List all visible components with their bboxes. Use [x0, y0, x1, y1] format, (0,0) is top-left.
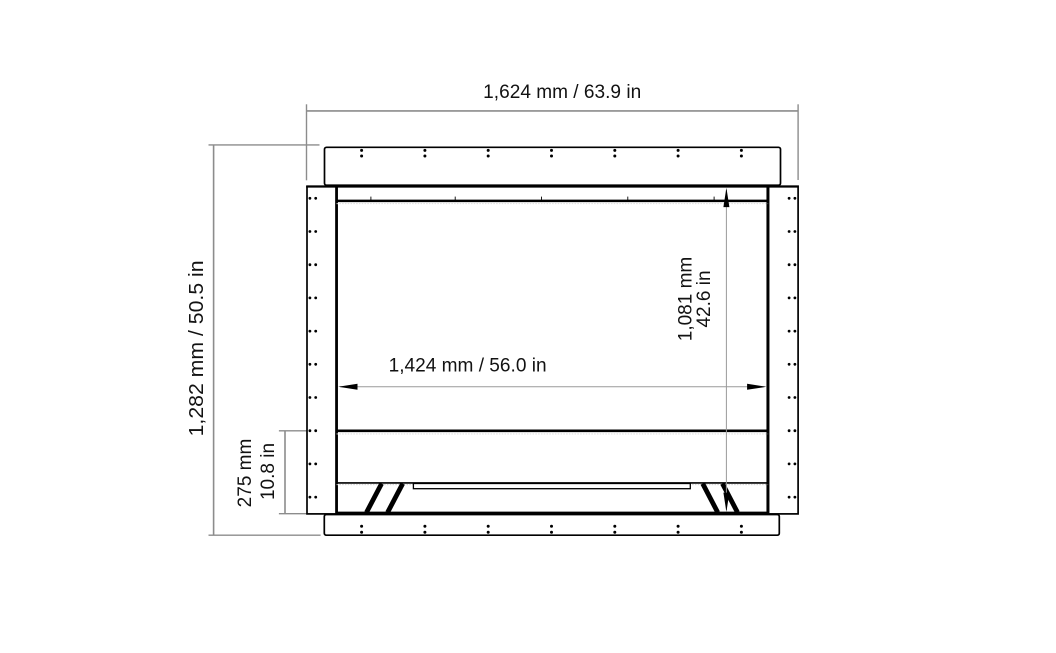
svg-text:275 mm: 275 mm — [235, 439, 256, 508]
svg-text:1,282 mm / 50.5 in: 1,282 mm / 50.5 in — [185, 260, 208, 436]
svg-text:1,424 mm / 56.0 in: 1,424 mm / 56.0 in — [389, 355, 547, 376]
svg-text:10.8 in: 10.8 in — [258, 443, 279, 500]
svg-text:42.6 in: 42.6 in — [694, 270, 715, 327]
svg-text:1,624 mm / 63.9 in: 1,624 mm / 63.9 in — [483, 82, 641, 103]
